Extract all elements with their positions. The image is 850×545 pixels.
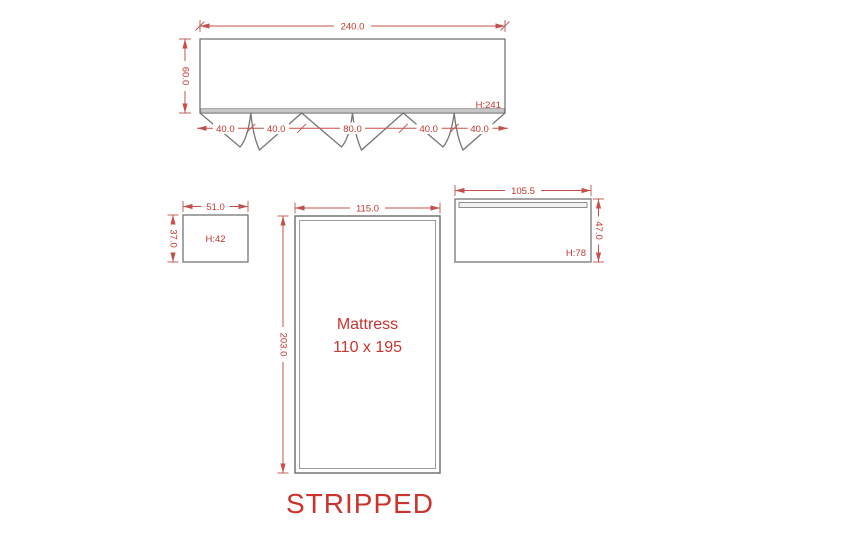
- dim-label: 40.0: [470, 124, 489, 135]
- dim-label: 60.0: [179, 67, 190, 86]
- cushion-height-tag: H:42: [205, 234, 225, 245]
- dim-headboard-height: 60.0: [179, 39, 191, 113]
- dim-label: 40.0: [267, 124, 286, 135]
- dim-cushion-width: 51.0: [183, 201, 248, 213]
- footboard-drawing: H:78 105.5 47.0: [455, 185, 604, 262]
- cushion-drawing: H:42 51.0 37.0: [167, 201, 248, 262]
- dim-label: 105.5: [511, 186, 535, 197]
- dim-label: 115.0: [356, 204, 379, 215]
- dim-label: 203.0: [277, 333, 288, 357]
- mattress-size-label: 110 x 195: [333, 339, 402, 356]
- dim-label: 51.0: [206, 202, 225, 213]
- dim-label: 240.0: [341, 22, 365, 33]
- dim-label: 37.0: [167, 229, 178, 248]
- dim-label: 47.0: [593, 221, 604, 240]
- dim-headboard-segments: 40.0 40.0 80.0 40.0 40.0: [197, 123, 508, 135]
- headboard-outline: [200, 39, 505, 113]
- headboard-drawing: H:241 240.0 60.0 40.0: [179, 20, 510, 150]
- footboard-height-tag: H:78: [566, 248, 586, 259]
- dim-cushion-height: 37.0: [167, 215, 178, 262]
- dim-mattress-height: 203.0: [277, 216, 288, 473]
- dim-label: 80.0: [343, 124, 362, 135]
- headboard-base-band: [201, 109, 504, 113]
- bed-components-drawing: H:241 240.0 60.0 40.0: [0, 0, 850, 545]
- headboard-height-tag: H:241: [476, 100, 501, 111]
- dim-mattress-width: 115.0: [295, 202, 440, 214]
- drawing-caption: STRIPPED: [286, 488, 434, 519]
- technical-drawing-page: H:241 240.0 60.0 40.0: [0, 0, 850, 545]
- dim-footboard-height: 47.0: [593, 199, 604, 262]
- dim-label: 40.0: [216, 124, 235, 135]
- dim-footboard-width: 105.5: [455, 185, 591, 197]
- dim-label: 40.0: [419, 124, 438, 135]
- dim-headboard-width: 240.0: [196, 20, 510, 33]
- mattress-label: Mattress: [337, 316, 398, 333]
- mattress-drawing: Mattress 110 x 195 115.0 203.0: [277, 202, 440, 473]
- footboard-top-rail: [459, 203, 587, 208]
